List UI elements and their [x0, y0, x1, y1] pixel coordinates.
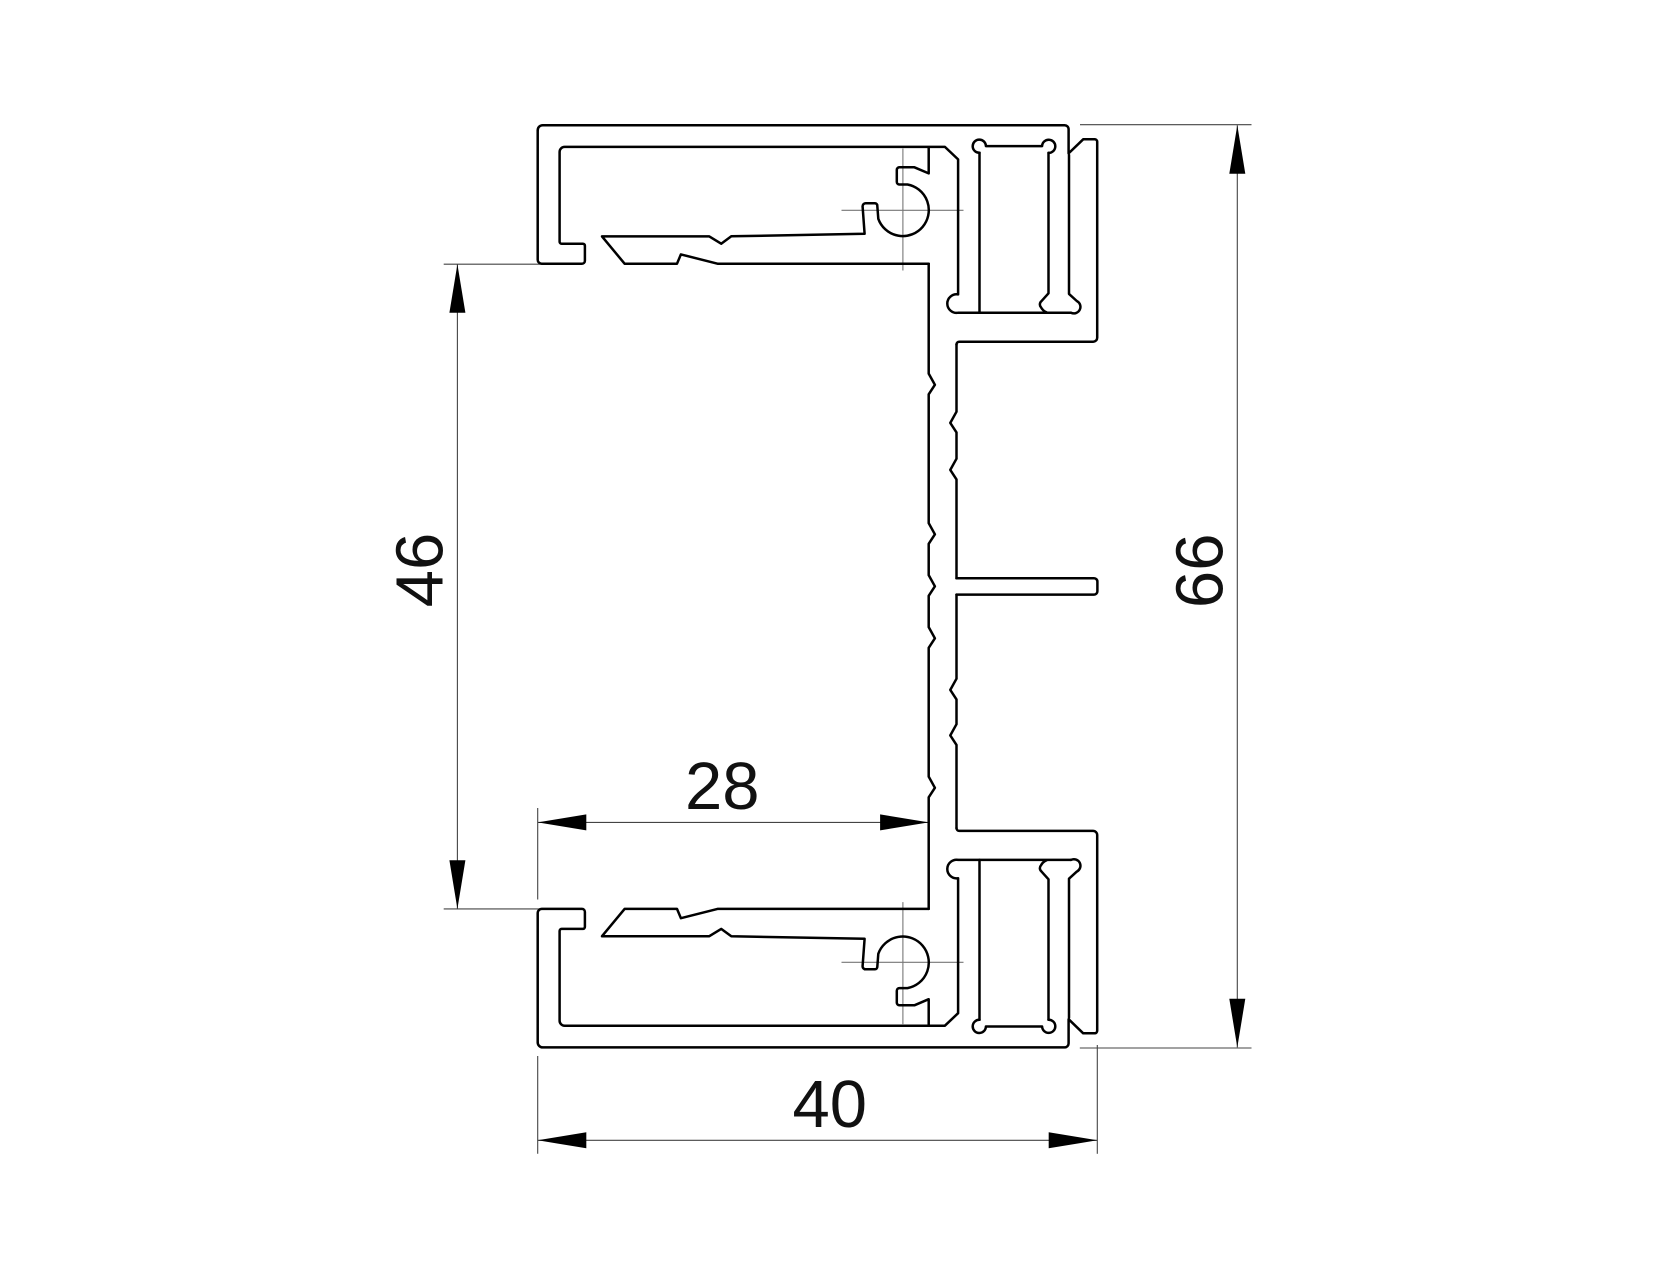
- svg-text:28: 28: [685, 749, 760, 824]
- svg-text:40: 40: [793, 1067, 868, 1142]
- svg-text:66: 66: [1163, 534, 1238, 609]
- svg-text:46: 46: [382, 533, 457, 608]
